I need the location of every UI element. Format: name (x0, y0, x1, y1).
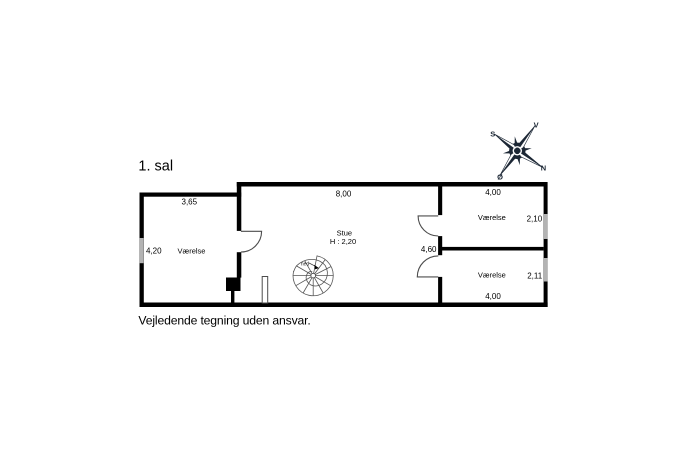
svg-text:4,20: 4,20 (146, 246, 162, 255)
svg-text:1. sal: 1. sal (138, 159, 173, 175)
svg-text:Værelse: Værelse (478, 213, 506, 222)
svg-text:4,00: 4,00 (485, 292, 501, 301)
svg-text:3,65: 3,65 (182, 197, 198, 206)
svg-text:N: N (541, 164, 546, 173)
svg-text:2,10: 2,10 (527, 214, 543, 223)
svg-text:Værelse: Værelse (478, 270, 506, 279)
svg-text:8,00: 8,00 (336, 190, 352, 199)
svg-text:Vejledende tegning uden ansvar: Vejledende tegning uden ansvar. (138, 314, 310, 328)
svg-text:H : 2,20: H : 2,20 (330, 237, 356, 246)
svg-text:4,00: 4,00 (485, 188, 501, 197)
svg-text:Værelse: Værelse (178, 246, 206, 255)
svg-text:V: V (534, 120, 539, 129)
svg-text:ned: ned (301, 262, 310, 268)
svg-text:S: S (490, 130, 495, 139)
svg-text:Stue: Stue (337, 229, 352, 238)
svg-text:2,11: 2,11 (527, 271, 543, 280)
svg-text:4,60: 4,60 (421, 245, 437, 254)
svg-text:Ø: Ø (497, 172, 503, 181)
